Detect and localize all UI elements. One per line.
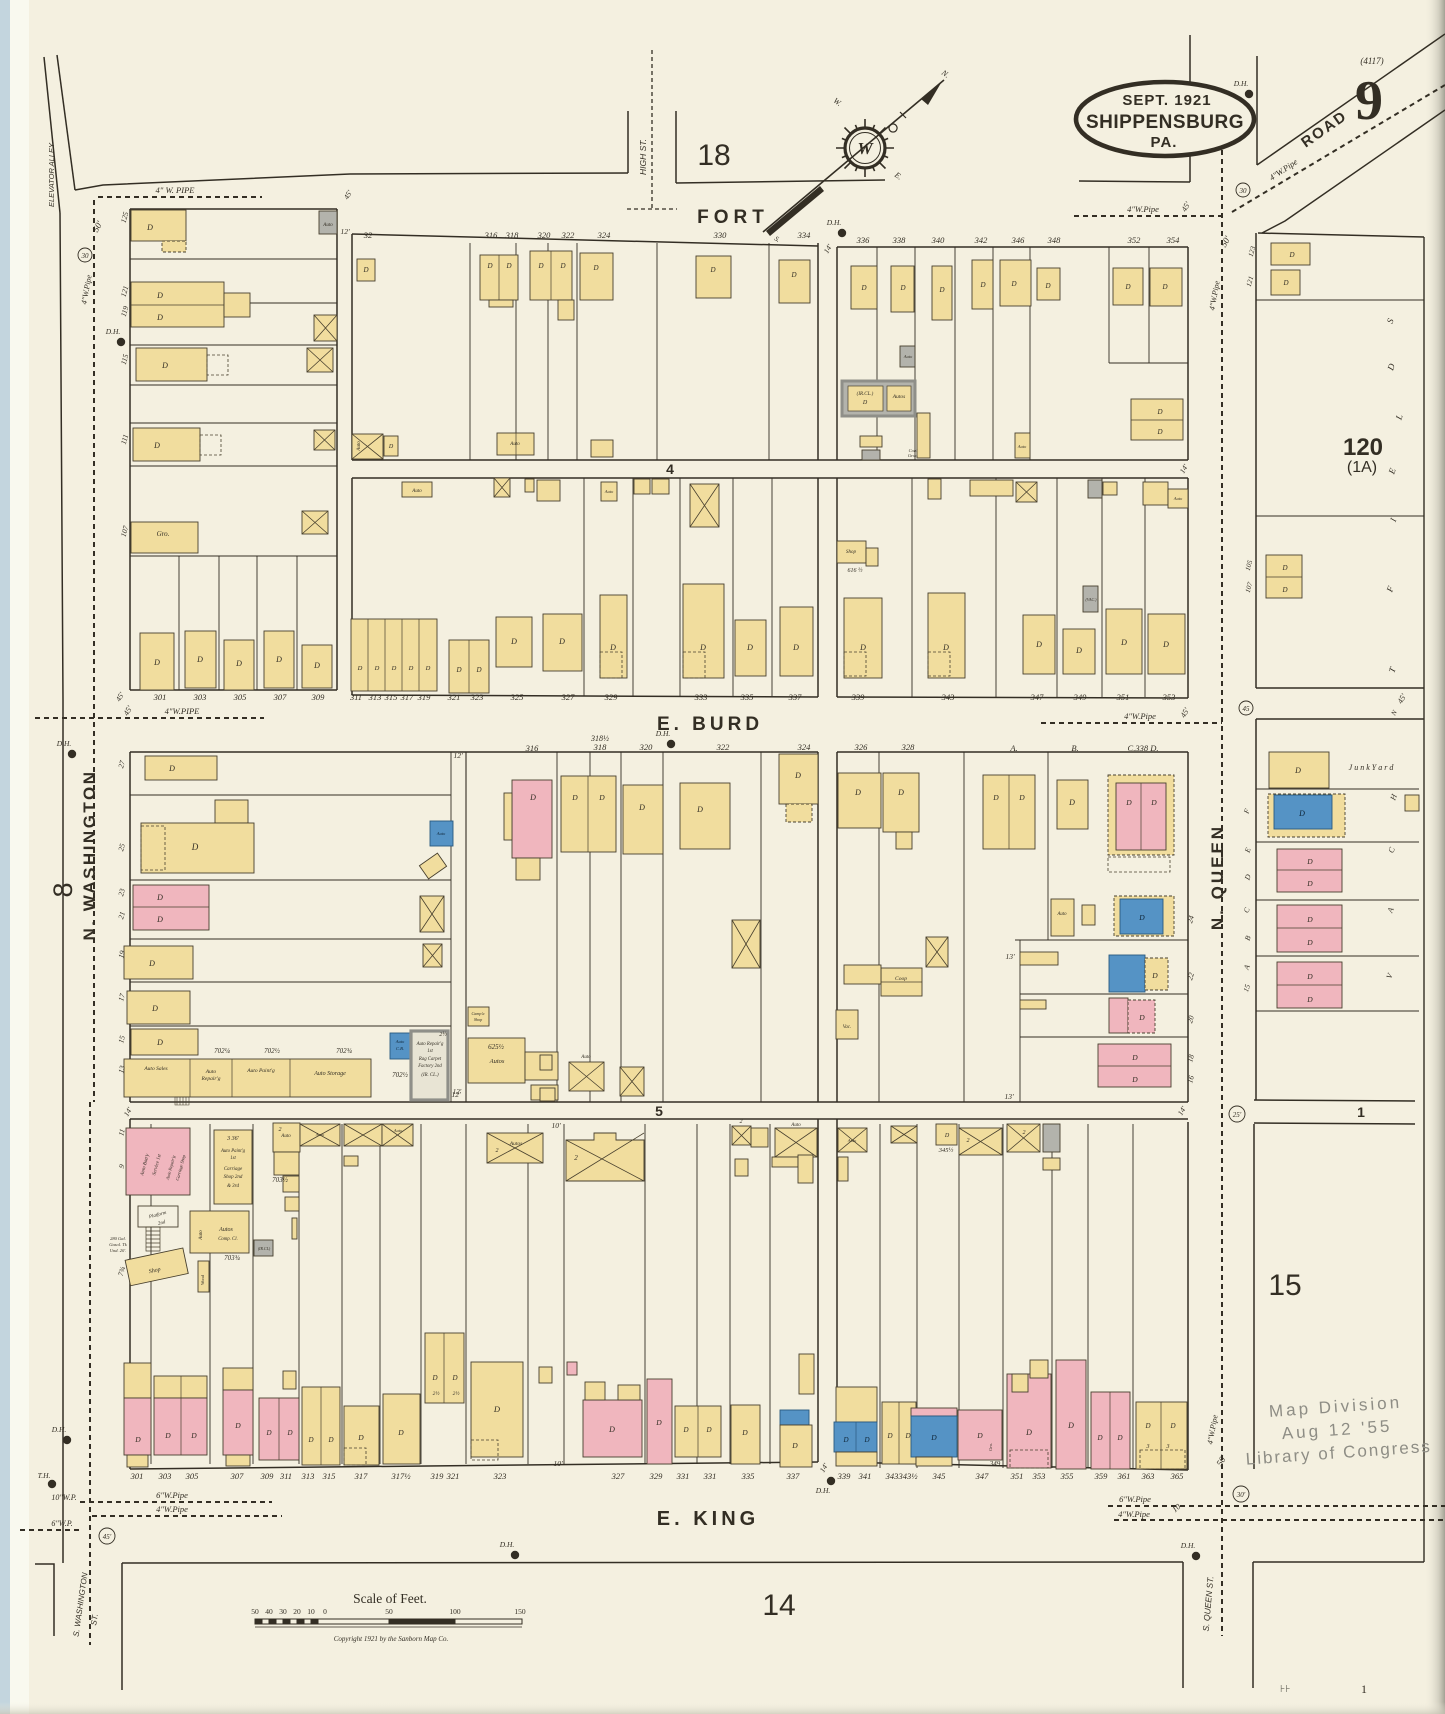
svg-text:D: D [1306, 915, 1313, 924]
svg-text:Auto Storage: Auto Storage [313, 1071, 346, 1077]
svg-text:329: 329 [649, 1471, 664, 1481]
svg-text:4" W. PIPE: 4" W. PIPE [156, 185, 196, 195]
svg-text:337: 337 [786, 1471, 801, 1481]
svg-text:334: 334 [797, 230, 812, 240]
svg-text:45: 45 [1243, 705, 1251, 713]
svg-text:Auto: Auto [205, 1069, 217, 1075]
svg-text:Repair'g: Repair'g [201, 1076, 221, 1082]
svg-text:D: D [860, 284, 866, 292]
svg-text:D: D [1281, 586, 1287, 594]
svg-text:D: D [327, 1436, 333, 1444]
svg-text:E. KING: E. KING [657, 1508, 759, 1530]
svg-text:D.H.: D.H. [815, 1486, 831, 1495]
svg-text:D: D [505, 262, 511, 270]
svg-text:Groc.: Groc. [908, 453, 918, 458]
svg-text:331: 331 [703, 1471, 717, 1481]
svg-text:D: D [191, 842, 199, 852]
svg-text:D: D [1169, 1422, 1175, 1430]
svg-text:2½: 2½ [433, 1390, 440, 1397]
svg-text:D.H.: D.H. [1233, 79, 1249, 88]
svg-text:313: 313 [301, 1471, 315, 1481]
svg-text:5: 5 [655, 1103, 663, 1119]
svg-text:D: D [451, 1374, 457, 1382]
svg-text:4"W.Pipe: 4"W.Pipe [1118, 1509, 1150, 1519]
svg-text:D: D [558, 637, 565, 646]
svg-text:D: D [1096, 1434, 1102, 1442]
svg-text:1: 1 [1357, 1104, 1365, 1120]
svg-text:305: 305 [233, 692, 247, 702]
svg-text:D: D [992, 793, 999, 802]
svg-text:D: D [1067, 1421, 1074, 1430]
svg-text:(IR.CL): (IR.CL) [258, 1246, 271, 1251]
svg-text:D: D [265, 1429, 271, 1437]
svg-text:FORT: FORT [697, 207, 769, 228]
svg-text:D: D [609, 643, 616, 652]
svg-text:348: 348 [1047, 235, 1062, 245]
svg-text:315: 315 [384, 692, 398, 702]
svg-text:D: D [156, 313, 163, 322]
svg-text:318: 318 [593, 742, 608, 752]
svg-text:D: D [1138, 913, 1145, 922]
svg-text:D: D [1282, 279, 1288, 287]
svg-text:(IR.CL.): (IR.CL.) [857, 392, 874, 397]
svg-text:D: D [1161, 283, 1167, 291]
svg-text:30': 30' [1236, 1491, 1246, 1499]
svg-text:Coop: Coop [895, 976, 907, 982]
svg-text:Auto: Auto [357, 441, 362, 452]
svg-text:359: 359 [1094, 1471, 1109, 1481]
svg-text:321: 321 [446, 1471, 460, 1481]
svg-text:150: 150 [514, 1607, 526, 1616]
svg-text:353: 353 [1032, 1471, 1046, 1481]
svg-text:18: 18 [697, 139, 730, 172]
svg-text:1st: 1st [427, 1049, 433, 1054]
svg-text:Vac.: Vac. [843, 1025, 851, 1030]
svg-text:D: D [275, 655, 282, 664]
svg-text:D: D [1035, 640, 1042, 649]
svg-text:347: 347 [1030, 692, 1045, 702]
svg-text:Auto: Auto [580, 1055, 591, 1060]
svg-text:D: D [1131, 1075, 1138, 1084]
svg-text:322: 322 [561, 230, 576, 240]
svg-text:319: 319 [430, 1471, 445, 1481]
svg-text:D: D [1306, 857, 1313, 866]
svg-text:D: D [1288, 251, 1294, 259]
svg-text:D: D [1018, 793, 1025, 802]
svg-text:Autos: Autos [892, 394, 906, 400]
svg-text:C.B.: C.B. [396, 1046, 404, 1051]
svg-text:50: 50 [251, 1607, 259, 1616]
svg-text:D: D [1044, 282, 1050, 290]
svg-text:D: D [190, 1431, 197, 1440]
svg-text:307: 307 [273, 692, 288, 702]
svg-text:311: 311 [349, 692, 362, 702]
svg-text:316: 316 [525, 743, 540, 753]
svg-text:D: D [156, 915, 163, 924]
svg-text:322: 322 [716, 742, 731, 752]
svg-text:301: 301 [130, 1471, 144, 1481]
svg-text:D: D [792, 643, 799, 652]
svg-text:335: 335 [740, 692, 754, 702]
svg-text:2½: 2½ [453, 1390, 460, 1397]
svg-text:SEPT. 1921: SEPT. 1921 [1122, 92, 1211, 109]
svg-text:4"W.PIPE: 4"W.PIPE [165, 706, 200, 716]
svg-text:D: D [235, 659, 242, 668]
svg-text:338: 338 [892, 235, 907, 245]
svg-text:2: 2 [1023, 1130, 1026, 1136]
svg-text:Shop 2nd: Shop 2nd [224, 1175, 243, 1180]
svg-text:D: D [1306, 972, 1313, 981]
svg-text:D: D [608, 1425, 615, 1434]
svg-text:N. WASHINGTON: N. WASHINGTON [80, 769, 99, 940]
svg-text:328: 328 [901, 742, 916, 752]
svg-text:301: 301 [153, 692, 167, 702]
svg-text:335: 335 [741, 1471, 755, 1481]
svg-text:D: D [153, 441, 160, 450]
svg-text:309: 309 [260, 1471, 275, 1481]
svg-text:D: D [1138, 1013, 1145, 1022]
svg-text:D: D [1306, 995, 1313, 1004]
svg-text:D: D [1306, 879, 1313, 888]
svg-text:D: D [979, 281, 985, 289]
svg-text:D: D [307, 1436, 313, 1444]
svg-text:323: 323 [493, 1471, 507, 1481]
svg-text:D: D [425, 665, 431, 672]
svg-text:D: D [1131, 1053, 1138, 1062]
svg-text:HIGH ST.: HIGH ST. [638, 139, 648, 175]
svg-text:D: D [1298, 809, 1305, 818]
svg-text:345½: 345½ [938, 1147, 954, 1154]
svg-text:D: D [357, 1433, 364, 1442]
svg-text:120: 120 [1343, 434, 1383, 461]
svg-text:D: D [1125, 798, 1132, 807]
svg-text:Auto Paint'g: Auto Paint'g [220, 1149, 246, 1154]
svg-text:616 ½: 616 ½ [848, 567, 864, 574]
svg-text:D: D [164, 1431, 171, 1440]
svg-text:324: 324 [597, 230, 612, 240]
svg-text:324: 324 [797, 742, 812, 752]
svg-text:353: 353 [1162, 692, 1176, 702]
svg-text:307: 307 [230, 1471, 245, 1481]
svg-text:J u n k Y a r d: J u n k Y a r d [1349, 763, 1395, 772]
svg-text:347: 347 [975, 1471, 990, 1481]
svg-text:D: D [146, 223, 153, 232]
svg-text:D: D [156, 1038, 163, 1047]
svg-text:702¾: 702¾ [336, 1047, 353, 1055]
svg-text:C.338 D.: C.338 D. [1128, 743, 1159, 753]
svg-text:Factory 2nd: Factory 2nd [417, 1064, 442, 1069]
svg-text:6"W.P.: 6"W.P. [51, 1519, 72, 1528]
svg-text:E. BURD: E. BURD [657, 714, 763, 735]
svg-text:Wood: Wood [200, 1274, 205, 1285]
svg-text:12': 12' [340, 227, 350, 236]
svg-text:30: 30 [81, 252, 90, 260]
svg-text:Auto Sales: Auto Sales [143, 1066, 167, 1072]
svg-text:D: D [455, 666, 461, 674]
svg-text:D: D [854, 788, 861, 797]
svg-text:D: D [475, 666, 481, 674]
svg-text:D: D [638, 803, 645, 812]
svg-text:Auto: Auto [509, 442, 520, 447]
svg-text:Auto: Auto [199, 1230, 204, 1241]
svg-text:D: D [1124, 283, 1130, 291]
svg-text:Gro.: Gro. [157, 530, 170, 538]
svg-text:D: D [196, 655, 203, 664]
svg-text:D: D [1025, 1428, 1032, 1437]
svg-text:327: 327 [611, 1471, 626, 1481]
svg-text:Auto: Auto [1017, 444, 1027, 449]
svg-text:D: D [699, 643, 706, 652]
svg-text:D: D [598, 793, 605, 802]
svg-text:Gasol. Tk: Gasol. Tk [109, 1242, 128, 1247]
svg-text:ST.: ST. [89, 1613, 100, 1626]
svg-text:313: 313 [368, 692, 382, 702]
svg-text:345: 345 [932, 1471, 946, 1481]
svg-text:N. QUEEN: N. QUEEN [1208, 824, 1227, 930]
svg-text:1st: 1st [230, 1156, 236, 1161]
svg-text:D: D [153, 658, 160, 667]
svg-text:ELEVATOR ALLEY: ELEVATOR ALLEY [47, 142, 56, 207]
svg-text:Auto: Auto [315, 1132, 325, 1137]
svg-text:D: D [790, 271, 796, 279]
svg-text:B.: B. [1071, 743, 1078, 753]
svg-text:D: D [357, 665, 363, 672]
svg-text:Carriage: Carriage [224, 1167, 243, 1172]
svg-text:D: D [529, 793, 536, 802]
svg-text:D: D [234, 1421, 241, 1430]
svg-text:D: D [741, 1428, 748, 1437]
svg-text:10"W.P.: 10"W.P. [51, 1493, 76, 1502]
svg-text:D.H.: D.H. [56, 739, 72, 748]
svg-text:323: 323 [470, 692, 484, 702]
svg-text:319: 319 [417, 692, 432, 702]
svg-text:D: D [791, 1441, 798, 1450]
svg-text:D: D [559, 262, 565, 270]
svg-text:40: 40 [265, 1607, 273, 1616]
svg-text:320: 320 [639, 742, 654, 752]
svg-text:D: D [388, 444, 394, 450]
svg-text:346: 346 [1011, 235, 1026, 245]
svg-text:Autos: Autos [489, 1058, 505, 1065]
svg-text:702½: 702½ [392, 1071, 409, 1079]
svg-text:1: 1 [1361, 1682, 1367, 1696]
svg-text:Scale of Feet.: Scale of Feet. [353, 1591, 427, 1606]
svg-text:D: D [862, 400, 868, 406]
svg-text:100: 100 [449, 1607, 461, 1616]
svg-text:2½: 2½ [439, 1031, 447, 1038]
svg-text:341: 341 [858, 1471, 872, 1481]
svg-text:Auto: Auto [790, 1123, 801, 1128]
svg-text:Auto: Auto [411, 489, 422, 494]
svg-text:D: D [904, 1432, 910, 1440]
svg-text:D: D [1068, 798, 1075, 807]
svg-text:Auto: Auto [903, 354, 913, 359]
svg-text:6"W.Pipe: 6"W.Pipe [1119, 1494, 1151, 1504]
svg-text:4: 4 [666, 461, 674, 477]
svg-text:361: 361 [1117, 1471, 1131, 1481]
svg-text:D: D [397, 1428, 404, 1437]
svg-text:625½: 625½ [488, 1043, 505, 1051]
svg-text:2: 2 [740, 1119, 743, 1125]
svg-text:D: D [886, 1432, 892, 1440]
svg-text:333: 333 [694, 692, 708, 702]
svg-text:317: 317 [400, 692, 415, 702]
svg-text:327: 327 [561, 692, 576, 702]
svg-text:D: D [1162, 640, 1169, 649]
svg-text:D: D [571, 793, 578, 802]
svg-text:D: D [794, 771, 801, 780]
svg-text:702½: 702½ [264, 1047, 281, 1055]
svg-text:6"W.Pipe: 6"W.Pipe [156, 1490, 188, 1500]
svg-text:Und. 20'.: Und. 20'. [110, 1248, 127, 1253]
svg-text:D: D [362, 266, 368, 274]
svg-text:Autos: Autos [509, 1141, 523, 1147]
svg-text:325: 325 [510, 692, 524, 702]
svg-text:D: D [161, 361, 168, 370]
svg-text:D: D [1120, 638, 1127, 647]
svg-text:(4117): (4117) [1360, 56, 1383, 66]
svg-text:(VAC.): (VAC.) [1086, 597, 1098, 602]
svg-text:14: 14 [762, 1589, 795, 1622]
svg-text:329: 329 [604, 692, 619, 702]
svg-text:Copyright 1921 by the Sanborn: Copyright 1921 by the Sanborn Map Co. [334, 1635, 449, 1643]
svg-text:339: 339 [851, 692, 866, 702]
svg-text:D: D [537, 262, 543, 270]
svg-text:4"W.Pipe: 4"W.Pipe [1127, 204, 1159, 214]
svg-text:354: 354 [1166, 235, 1181, 245]
svg-text:12': 12' [451, 1090, 461, 1099]
svg-text:9: 9 [1355, 70, 1383, 132]
svg-text:D: D [151, 1004, 158, 1013]
svg-text:PA.: PA. [1151, 134, 1178, 151]
svg-text:355: 355 [1060, 1471, 1074, 1481]
svg-text:10: 10 [307, 1607, 315, 1616]
svg-text:T.H.: T.H. [38, 1471, 51, 1480]
svg-text:2: 2 [279, 1127, 282, 1133]
svg-text:25': 25' [1233, 1111, 1242, 1119]
svg-text:337: 337 [788, 692, 803, 702]
svg-text:D: D [863, 1436, 869, 1444]
svg-text:4"W.Pipe: 4"W.Pipe [156, 1504, 188, 1514]
svg-text:30: 30 [1239, 187, 1248, 195]
svg-text:Auto: Auto [436, 831, 446, 836]
svg-text:D: D [655, 1418, 662, 1427]
svg-text:3: 3 [1146, 1444, 1150, 1450]
svg-text:315: 315 [322, 1471, 336, 1481]
svg-text:D: D [486, 262, 492, 270]
svg-text:Shop: Shop [474, 1017, 482, 1022]
svg-text:D.H.: D.H. [499, 1540, 515, 1549]
svg-text:D: D [682, 1426, 688, 1434]
svg-text:A.: A. [1009, 743, 1017, 753]
svg-text:D: D [1075, 646, 1082, 655]
svg-text:D: D [510, 637, 517, 646]
svg-text:Rag Carpet: Rag Carpet [418, 1057, 442, 1062]
svg-text:0: 0 [323, 1607, 327, 1616]
svg-text:316: 316 [484, 230, 499, 240]
svg-text:Auto: Auto [1173, 496, 1183, 501]
svg-text:D: D [1151, 971, 1158, 980]
svg-text:349: 349 [989, 1460, 1001, 1468]
svg-text:(IR. CL.): (IR. CL.) [421, 1073, 439, 1078]
svg-text:(1A): (1A) [1347, 459, 1377, 476]
svg-text:321: 321 [447, 692, 461, 702]
svg-text:D: D [431, 1374, 437, 1382]
svg-text:D: D [842, 1436, 848, 1444]
svg-text:D.H.: D.H. [1180, 1541, 1196, 1550]
svg-text:D: D [313, 661, 320, 670]
svg-text:330: 330 [713, 230, 728, 240]
svg-text:30: 30 [279, 1607, 287, 1616]
svg-text:Auto: Auto [847, 1138, 857, 1143]
svg-text:702¼: 702¼ [214, 1047, 231, 1055]
svg-text:45': 45' [103, 1533, 112, 1541]
svg-text:703½: 703½ [272, 1176, 289, 1184]
svg-text:339: 339 [837, 1471, 852, 1481]
svg-text:D: D [1010, 280, 1016, 288]
svg-text:331: 331 [676, 1471, 690, 1481]
svg-text:15: 15 [1268, 1269, 1301, 1302]
svg-text:3: 3 [1166, 1444, 1170, 1450]
svg-text:317½: 317½ [390, 1471, 411, 1481]
svg-text:Auto: Auto [280, 1134, 291, 1139]
svg-text:D: D [1281, 564, 1287, 572]
svg-text:13': 13' [1005, 952, 1015, 961]
svg-text:320: 320 [537, 230, 552, 240]
svg-text:10': 10' [551, 1121, 561, 1130]
svg-text:D: D [1156, 408, 1162, 416]
svg-text:D: D [408, 665, 414, 672]
svg-text:Gro.: Gro. [988, 1443, 993, 1451]
svg-text:D: D [897, 788, 904, 797]
svg-text:343½: 343½ [897, 1471, 918, 1481]
svg-text:2: 2 [496, 1148, 499, 1154]
svg-text:340: 340 [931, 235, 946, 245]
svg-text:50: 50 [385, 1607, 393, 1616]
svg-text:349: 349 [1073, 692, 1088, 702]
svg-text:Auto Repair'g: Auto Repair'g [416, 1042, 444, 1047]
svg-text:Autos: Autos [218, 1227, 233, 1233]
svg-text:Auto: Auto [322, 223, 333, 228]
svg-text:352: 352 [1127, 235, 1142, 245]
svg-text:13': 13' [1004, 1092, 1014, 1101]
svg-text:D: D [899, 284, 905, 292]
svg-text:D: D [148, 959, 155, 968]
svg-text:363: 363 [1141, 1471, 1155, 1481]
svg-text:Auto: Auto [395, 1039, 405, 1044]
svg-text:20: 20 [293, 1607, 301, 1616]
svg-text:280 Gal.: 280 Gal. [110, 1236, 126, 1241]
svg-text:D: D [930, 1433, 937, 1442]
svg-text:32: 32 [363, 230, 373, 240]
svg-text:Auto: Auto [1056, 912, 1067, 917]
svg-text:W: W [857, 139, 874, 158]
svg-text:D: D [696, 805, 703, 814]
svg-text:D: D [938, 286, 944, 294]
svg-text:D: D [374, 665, 380, 672]
svg-text:D: D [1150, 798, 1157, 807]
svg-text:D: D [493, 1404, 501, 1414]
svg-text:4"W.Pipe: 4"W.Pipe [1124, 711, 1156, 721]
svg-text:D: D [859, 643, 866, 652]
svg-text:& 3rd: & 3rd [227, 1184, 239, 1189]
svg-text:2: 2 [574, 1154, 578, 1162]
svg-text:303: 303 [193, 692, 207, 702]
svg-text:D: D [1156, 428, 1162, 436]
svg-text:Auto: Auto [604, 489, 614, 494]
svg-text:D: D [168, 764, 175, 773]
svg-text:D: D [942, 643, 949, 652]
